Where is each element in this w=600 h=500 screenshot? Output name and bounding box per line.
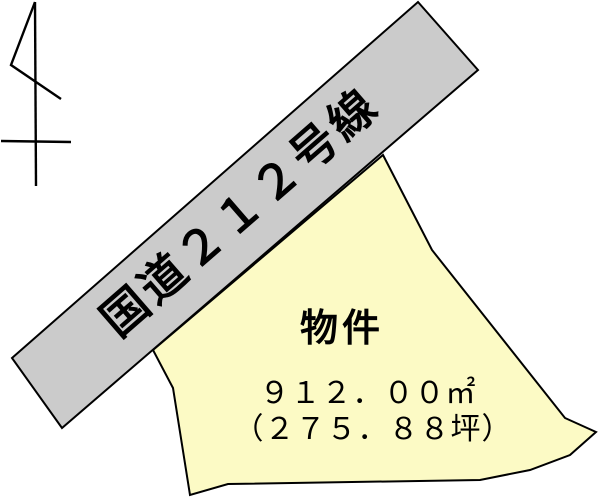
- site-plan-map: 国道２１２号線 物件 ９１２．００㎡ （２７５．８８坪）: [0, 0, 600, 500]
- north-arrow-icon: [1, 2, 71, 186]
- parcel-label: 物件: [300, 308, 384, 350]
- north-arrow-shaft: [35, 2, 36, 186]
- parcel-area-tsubo: （２７５．８８坪）: [234, 413, 513, 446]
- site-plan-svg: 国道２１２号線 物件 ９１２．００㎡ （２７５．８８坪）: [0, 0, 600, 500]
- parcel-area-sqm: ９１２．００㎡: [260, 377, 477, 410]
- north-arrow-crossbar: [1, 141, 71, 142]
